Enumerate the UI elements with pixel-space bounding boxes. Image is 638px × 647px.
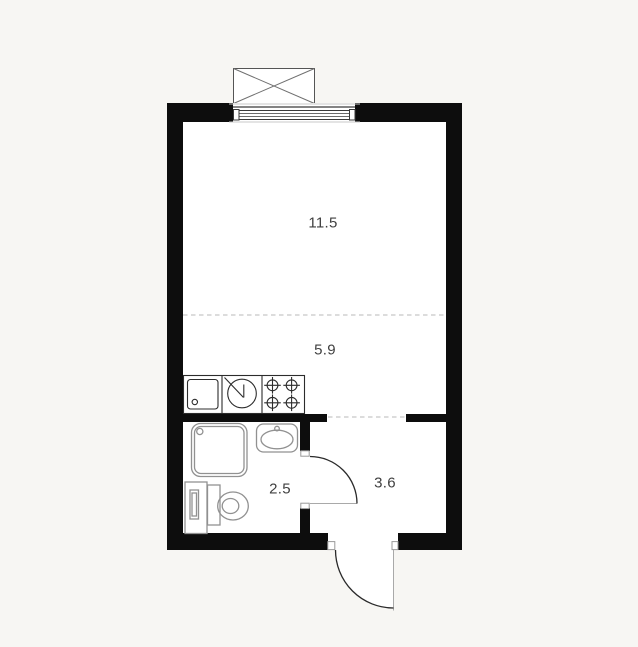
room-area-label-living: 11.5: [308, 215, 337, 232]
wall-bath-right-lower: [300, 508, 310, 533]
wall-bottom-right: [398, 533, 462, 550]
bath-door-jamb-bottom: [301, 503, 309, 508]
apartment-floor: [167, 103, 462, 550]
wall-left: [167, 103, 183, 550]
floorplan: 11.5 5.9 2.5 3.6: [0, 0, 638, 647]
kitchen-counter: [184, 376, 305, 414]
wall-right: [446, 103, 462, 550]
entrance-jamb-left: [328, 542, 335, 550]
wall-hall-top-right: [406, 414, 447, 422]
balcony-icon: [234, 69, 315, 104]
room-area-label-hallway: 3.6: [374, 475, 396, 492]
wall-top-right: [355, 103, 462, 122]
bath-door-jamb-top: [301, 451, 309, 456]
room-area-label-kitchen: 5.9: [314, 342, 336, 359]
window-icon: [229, 103, 360, 122]
floorplan-drawing: [0, 0, 638, 647]
entrance-door-swing-area: [336, 550, 394, 608]
wall-bath-right-upper: [300, 414, 310, 451]
entrance-jamb-right: [392, 542, 398, 550]
wall-bottom-left: [167, 533, 328, 550]
room-area-label-bathroom: 2.5: [269, 481, 291, 498]
